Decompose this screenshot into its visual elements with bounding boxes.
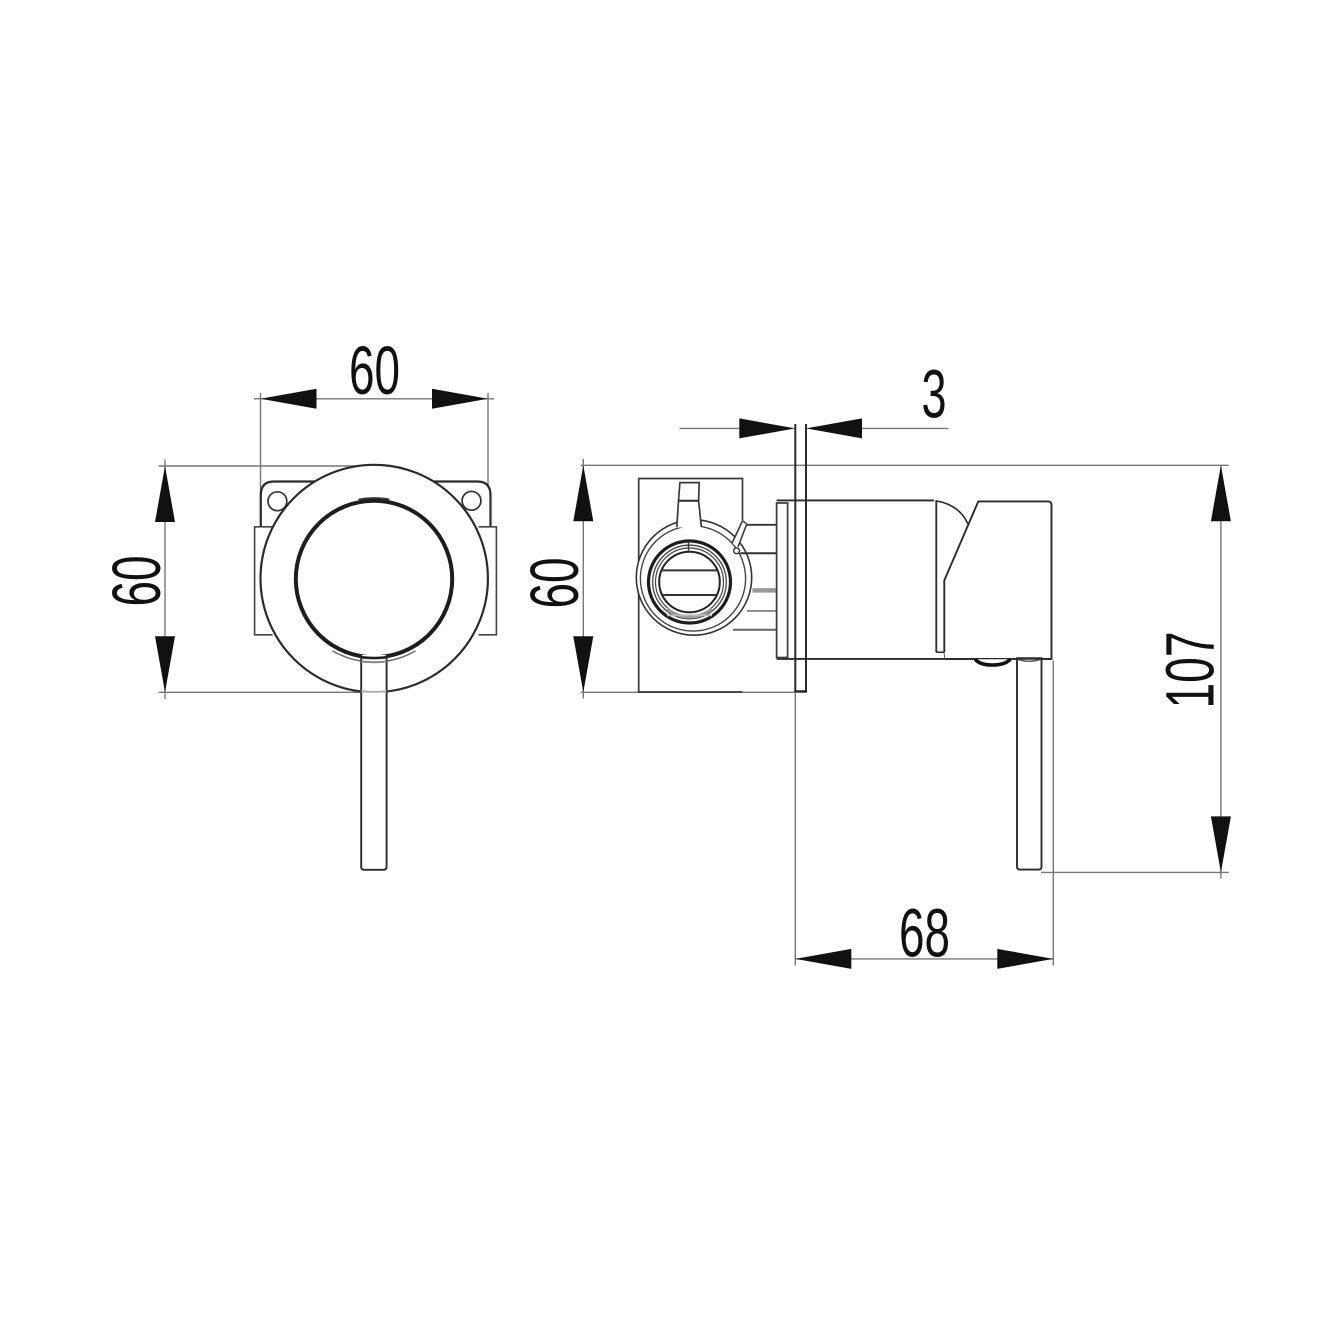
svg-text:68: 68	[899, 895, 950, 972]
svg-text:3: 3	[922, 356, 947, 433]
svg-text:60: 60	[98, 556, 175, 607]
svg-text:60: 60	[349, 332, 400, 409]
svg-text:107: 107	[1152, 632, 1229, 709]
svg-text:60: 60	[516, 558, 593, 609]
